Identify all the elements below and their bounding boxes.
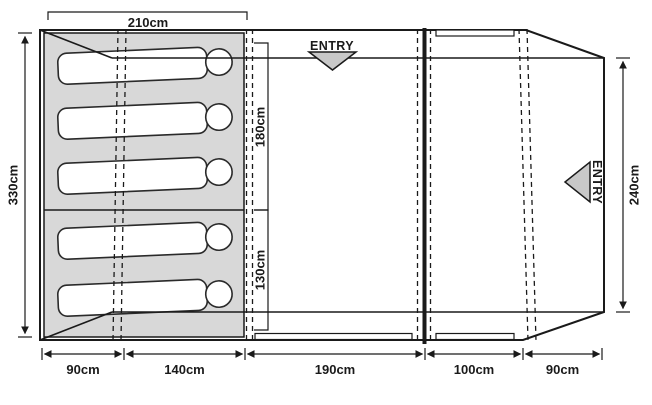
tent-floorplan-diagram: ENTRY ENTRY 210cm 330cm 180cm 130cm 240c… xyxy=(0,0,652,405)
dimension-bottom-segment-label: 90cm xyxy=(66,362,99,377)
divider-bar xyxy=(423,28,427,344)
sleeper-head xyxy=(205,158,233,186)
dimension-bottom-segment-label: 190cm xyxy=(315,362,355,377)
window-panel-bottom-right xyxy=(436,334,514,340)
sleeper-head xyxy=(205,103,233,131)
sleeper-head xyxy=(205,48,233,76)
floorplan-canvas: ENTRY ENTRY 210cm 330cm 180cm 130cm 240c… xyxy=(0,0,652,405)
sleeper-head xyxy=(205,223,233,251)
dimension-cabin-width-label: 210cm xyxy=(128,15,168,30)
sleeper-head xyxy=(205,280,233,308)
window-panel-top xyxy=(436,30,514,36)
dimension-bottom-segment-label: 140cm xyxy=(164,362,204,377)
window-panel-bottom-left xyxy=(255,334,412,340)
dimension-bottom-chain: 90cm 140cm 190cm 100cm 90cm xyxy=(42,348,602,377)
entry-right-label: ENTRY xyxy=(590,160,604,204)
entry-top-label: ENTRY xyxy=(310,39,354,53)
dimension-cabin-width: 210cm xyxy=(48,12,247,30)
dimension-tent-depth: 330cm xyxy=(6,33,32,337)
dimension-porch-depth: 240cm xyxy=(616,58,642,312)
dimension-porch-depth-label: 240cm xyxy=(627,165,642,205)
dimension-bottom-segment-label: 90cm xyxy=(546,362,579,377)
dimension-bedroom-small-label: 130cm xyxy=(253,250,268,290)
dimension-bottom-segment-label: 100cm xyxy=(454,362,494,377)
dimension-tent-depth-label: 330cm xyxy=(6,165,21,205)
dimension-bedroom-main-label: 180cm xyxy=(253,107,268,147)
